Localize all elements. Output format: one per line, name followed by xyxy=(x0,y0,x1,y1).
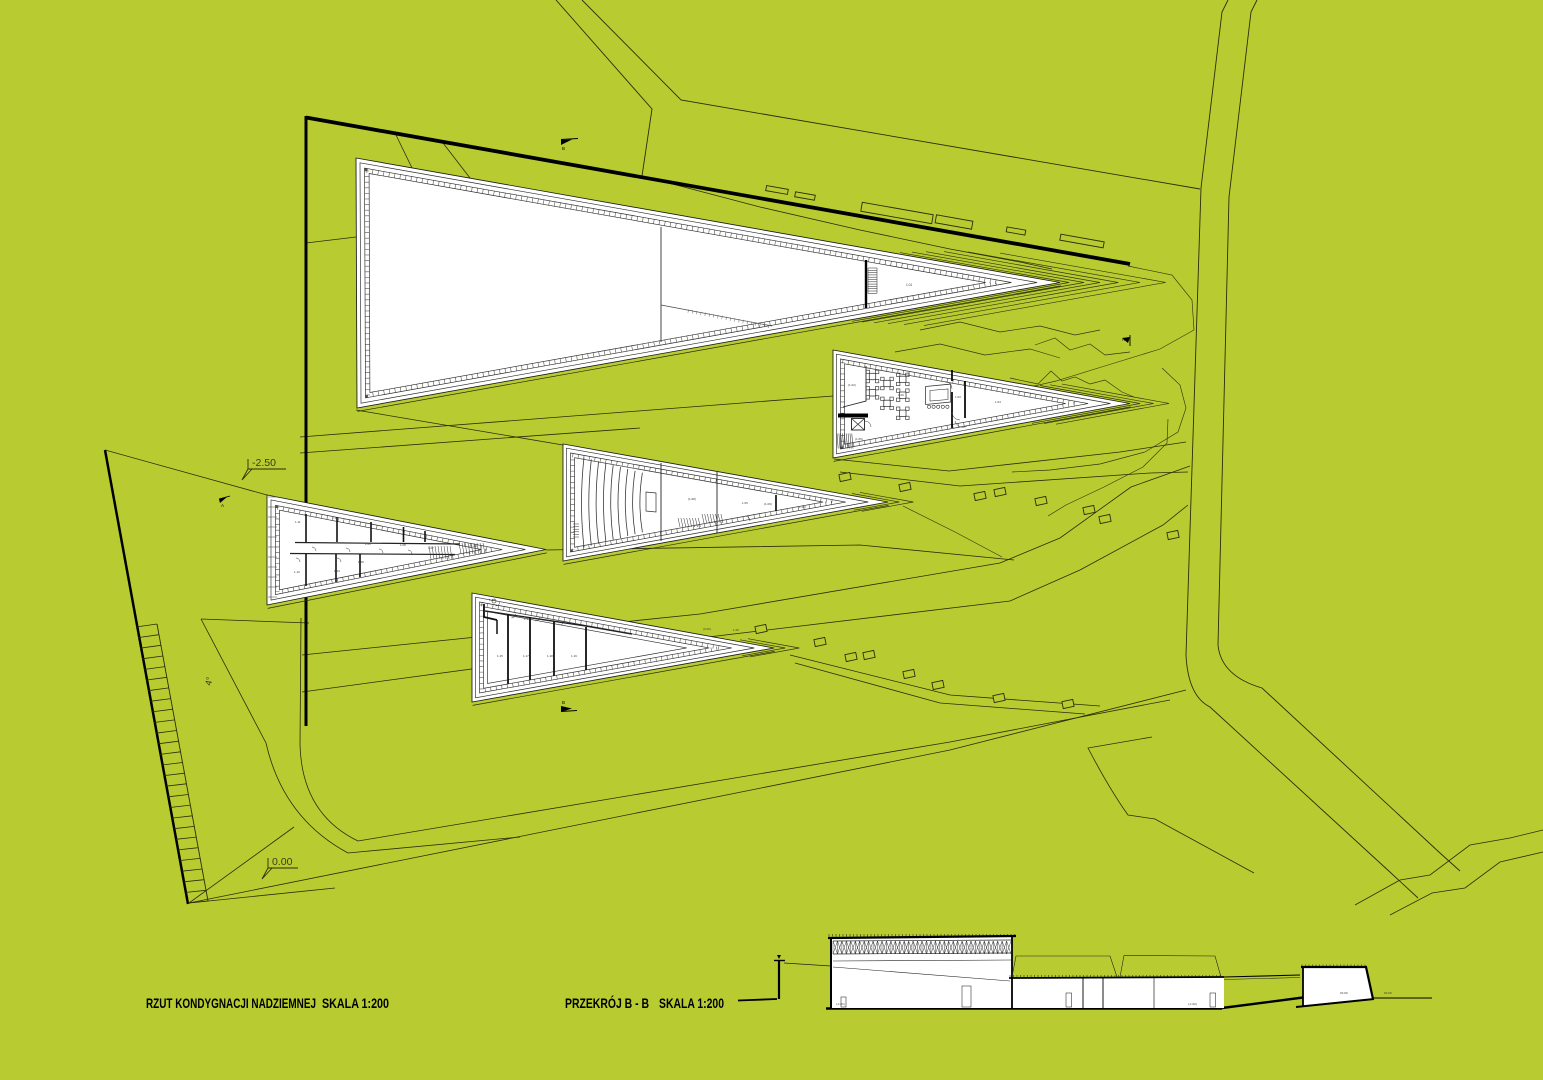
svg-text:1.05: 1.05 xyxy=(365,542,371,546)
svg-text:(-1.01): (-1.01) xyxy=(836,1002,845,1006)
svg-text:1.11: 1.11 xyxy=(295,520,301,524)
svg-text:1.13: 1.13 xyxy=(334,569,340,573)
svg-text:1.05: 1.05 xyxy=(742,501,748,505)
svg-text:0.00: 0.00 xyxy=(272,856,293,868)
svg-text:(1.10): (1.10) xyxy=(798,505,806,509)
svg-text:RZUT KONDYGNACJI NADZIEMNEJ: RZUT KONDYGNACJI NADZIEMNEJ xyxy=(146,995,316,1011)
svg-text:(1.09): (1.09) xyxy=(764,502,772,506)
svg-text:SKALA 1:200: SKALA 1:200 xyxy=(322,995,389,1011)
svg-text:(1.05): (1.05) xyxy=(855,437,863,441)
svg-text:1.06: 1.06 xyxy=(898,393,904,397)
svg-text:1.03: 1.03 xyxy=(955,395,961,399)
svg-text:PRZEKRÓJ B - B: PRZEKRÓJ B - B xyxy=(565,994,649,1011)
svg-text:1.04: 1.04 xyxy=(995,400,1001,404)
svg-text:1.10: 1.10 xyxy=(332,516,338,520)
svg-text:1.18: 1.18 xyxy=(547,654,553,658)
svg-text:1.14: 1.14 xyxy=(524,617,530,621)
svg-text:-1.80: -1.80 xyxy=(470,544,477,548)
svg-text:±0.00: ±0.00 xyxy=(1340,991,1348,995)
svg-text:1.01: 1.01 xyxy=(906,283,912,287)
svg-text:(1.02): (1.02) xyxy=(848,383,856,387)
svg-text:(0.00): (0.00) xyxy=(703,627,711,631)
svg-text:(1.08): (1.08) xyxy=(688,497,696,501)
svg-text:1.08: 1.08 xyxy=(400,543,406,547)
svg-text:±0.00: ±0.00 xyxy=(1384,991,1392,995)
svg-text:A: A xyxy=(221,503,224,508)
svg-text:1.12: 1.12 xyxy=(294,570,300,574)
svg-text:SKALA 1:200: SKALA 1:200 xyxy=(659,995,724,1011)
svg-text:(-1.02): (-1.02) xyxy=(1188,1002,1197,1006)
svg-text:-2.50: -2.50 xyxy=(252,457,276,469)
svg-text:1.19: 1.19 xyxy=(571,654,577,658)
svg-text:1.17: 1.17 xyxy=(523,654,529,658)
svg-text:1.06: 1.06 xyxy=(358,560,364,564)
svg-text:1.07: 1.07 xyxy=(428,546,434,550)
svg-text:B: B xyxy=(562,700,565,705)
svg-text:A: A xyxy=(1122,337,1125,342)
svg-text:1.20: 1.20 xyxy=(733,628,739,632)
svg-text:1.15: 1.15 xyxy=(497,654,503,658)
svg-text:B: B xyxy=(562,146,565,151)
